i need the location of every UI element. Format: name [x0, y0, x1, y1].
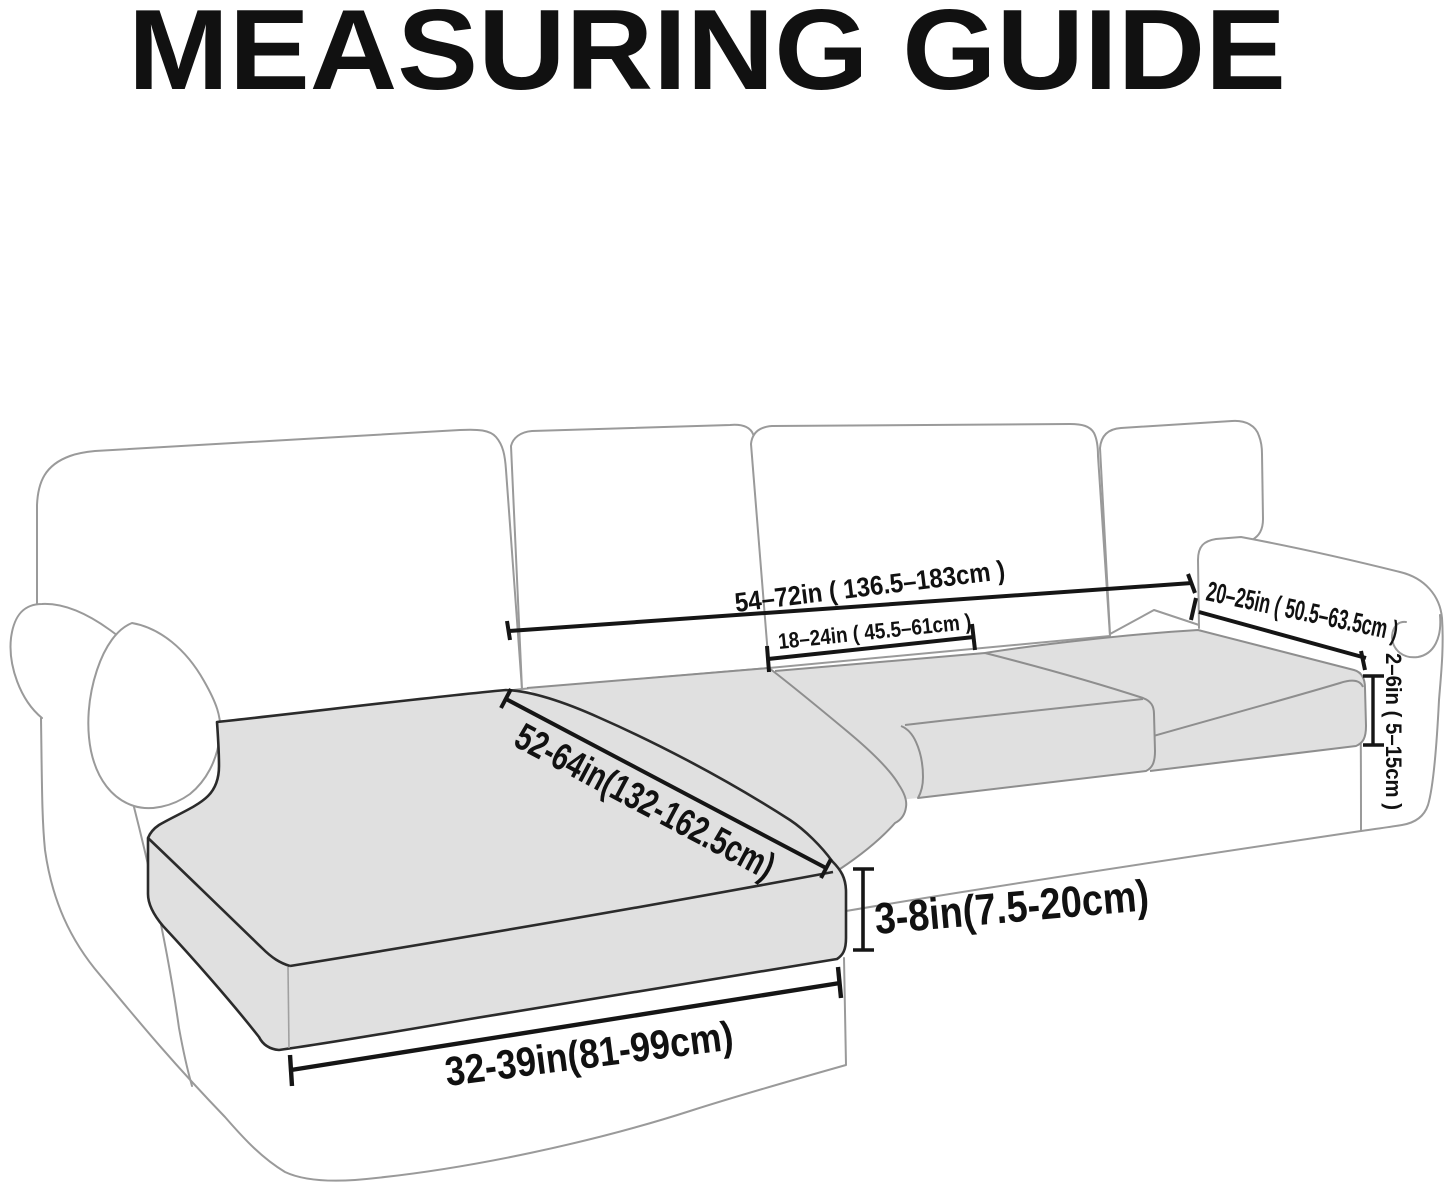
svg-text:MEASURING GUIDE: MEASURING GUIDE	[128, 0, 1286, 114]
svg-text:2–6in ( 5–15cm ): 2–6in ( 5–15cm )	[1381, 653, 1406, 810]
